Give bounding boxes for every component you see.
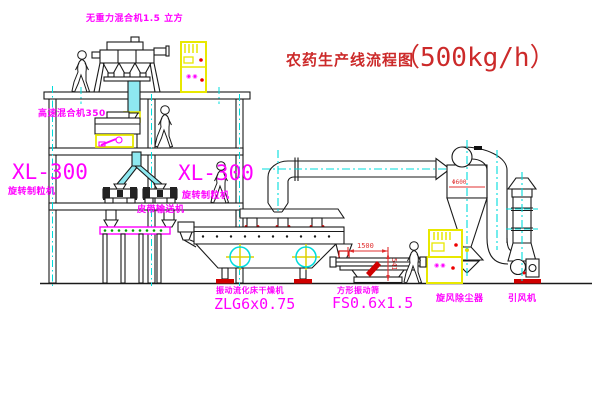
label-high-speed-mixer: 高速混合机350 — [38, 110, 106, 119]
label-screen-model: FS0.6x1.5 — [332, 296, 413, 311]
dimension-cyclone-dia: Φ600 — [452, 180, 466, 186]
person-figure — [72, 51, 90, 92]
status-dot — [451, 266, 455, 270]
cabinet1-marking: ◉◉ — [186, 74, 198, 80]
granulator-left-unit — [103, 184, 137, 203]
gravity-free-mixer — [92, 37, 169, 113]
exhaust-stack-and-fan — [487, 172, 541, 284]
control-cabinet-2 — [427, 230, 462, 283]
fan-base — [514, 279, 541, 284]
label-gravity-mixer: 无重力混合机1.5 立方 — [86, 15, 183, 24]
label-dryer-model: ZLG6x0.75 — [214, 297, 295, 312]
base-pad — [216, 279, 234, 284]
status-dot — [454, 243, 458, 247]
label-dryer-name: 振动流化床干燥机 — [216, 287, 284, 295]
status-dot — [199, 58, 203, 62]
label-belt-conveyor: 皮带输送机 — [137, 206, 185, 215]
diagram-capacity: （500kg/h） — [394, 45, 556, 71]
label-granulator-left-name: 旋转制粒机 — [8, 188, 56, 197]
status-dot — [200, 78, 204, 82]
belt-conveyor — [100, 227, 170, 283]
dimension-screen-height: 541 — [390, 258, 397, 271]
control-cabinet-1 — [181, 42, 206, 92]
base-pad — [294, 279, 312, 284]
label-granulator-right-model: XL-300 — [178, 163, 254, 184]
exhaust-duct — [262, 150, 450, 214]
mixer-drop-pipe — [128, 81, 140, 113]
dimension-screen-length: 1500 — [357, 243, 374, 250]
cabinet2-marking: ◉◉ — [434, 263, 446, 269]
label-granulator-left-model: XL-300 — [12, 162, 88, 183]
label-induced-draft-fan: 引风机 — [508, 295, 537, 304]
person-figure — [155, 106, 173, 147]
cad-flow-diagram: 农药生产线流程图 （500kg/h） 无重力混合机1.5 立方 高速混合机350… — [0, 0, 600, 403]
label-granulator-right-name: 旋转制粒机 — [182, 192, 230, 201]
fluid-bed-dryer — [194, 209, 352, 284]
label-cyclone: 旋风除尘器 — [436, 295, 484, 304]
